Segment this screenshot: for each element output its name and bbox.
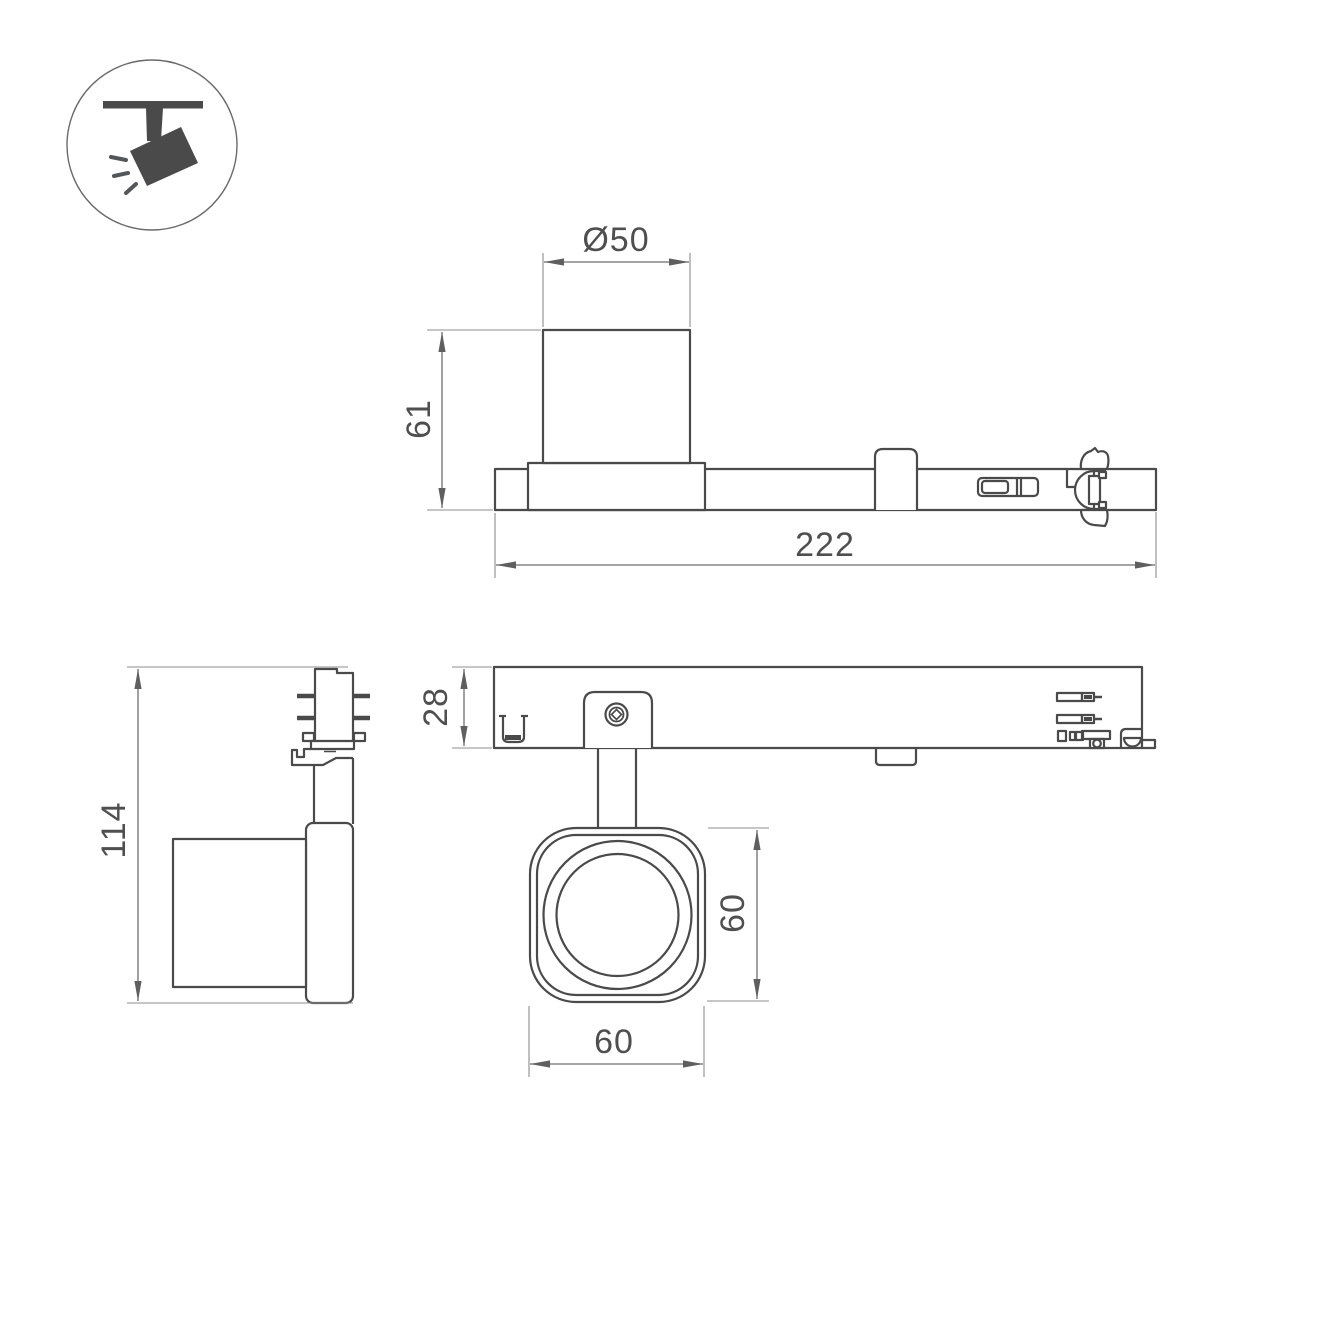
top-view (494, 667, 1155, 828)
side-view (495, 330, 1156, 526)
adapter-side-tab-right (354, 733, 365, 741)
dim-label-head-height: 61 (400, 399, 438, 439)
lamp-cylinder (543, 330, 690, 463)
technical-drawing-page: Ø50 61 222 114 (0, 0, 1331, 1331)
dim-label-adapter-depth: 28 (417, 687, 455, 727)
mount-plate (584, 692, 652, 748)
mounting-hook (292, 749, 353, 765)
dim-adapter-depth: 28 (417, 667, 492, 748)
adapter-latch-bump (875, 449, 917, 510)
adapter-side-tab-left (303, 733, 314, 741)
power-pins (297, 696, 370, 718)
lamp-body-square (173, 839, 306, 987)
dim-head-size-vertical: 60 (707, 828, 769, 1001)
dim-label-adapter-length: 222 (795, 526, 855, 564)
dim-adapter-length: 222 (495, 512, 1156, 578)
front-view (173, 669, 370, 1003)
product-type-icon (67, 60, 237, 230)
ceiling-track-icon (103, 101, 203, 109)
dim-label-overall-height: 114 (95, 801, 133, 858)
dim-head-diameter: Ø50 (543, 221, 690, 327)
dim-head-size-horizontal: 60 (529, 1006, 704, 1077)
adapter-end-body (315, 669, 353, 746)
dim-label-head-diameter: Ø50 (582, 221, 649, 259)
bottom-latch-tab (876, 748, 916, 765)
dim-label-head-size-vertical: 60 (714, 893, 752, 933)
bottom-view (530, 828, 705, 1002)
lamp-base-plate (528, 463, 705, 510)
lamp-head-side (306, 823, 353, 1003)
icon-stem (146, 108, 163, 141)
dim-label-head-size-horizontal: 60 (594, 1023, 634, 1061)
drawing-canvas: Ø50 61 222 114 (0, 0, 1331, 1331)
adapter-lower-plate (311, 741, 354, 749)
slide-switch (978, 478, 1038, 496)
